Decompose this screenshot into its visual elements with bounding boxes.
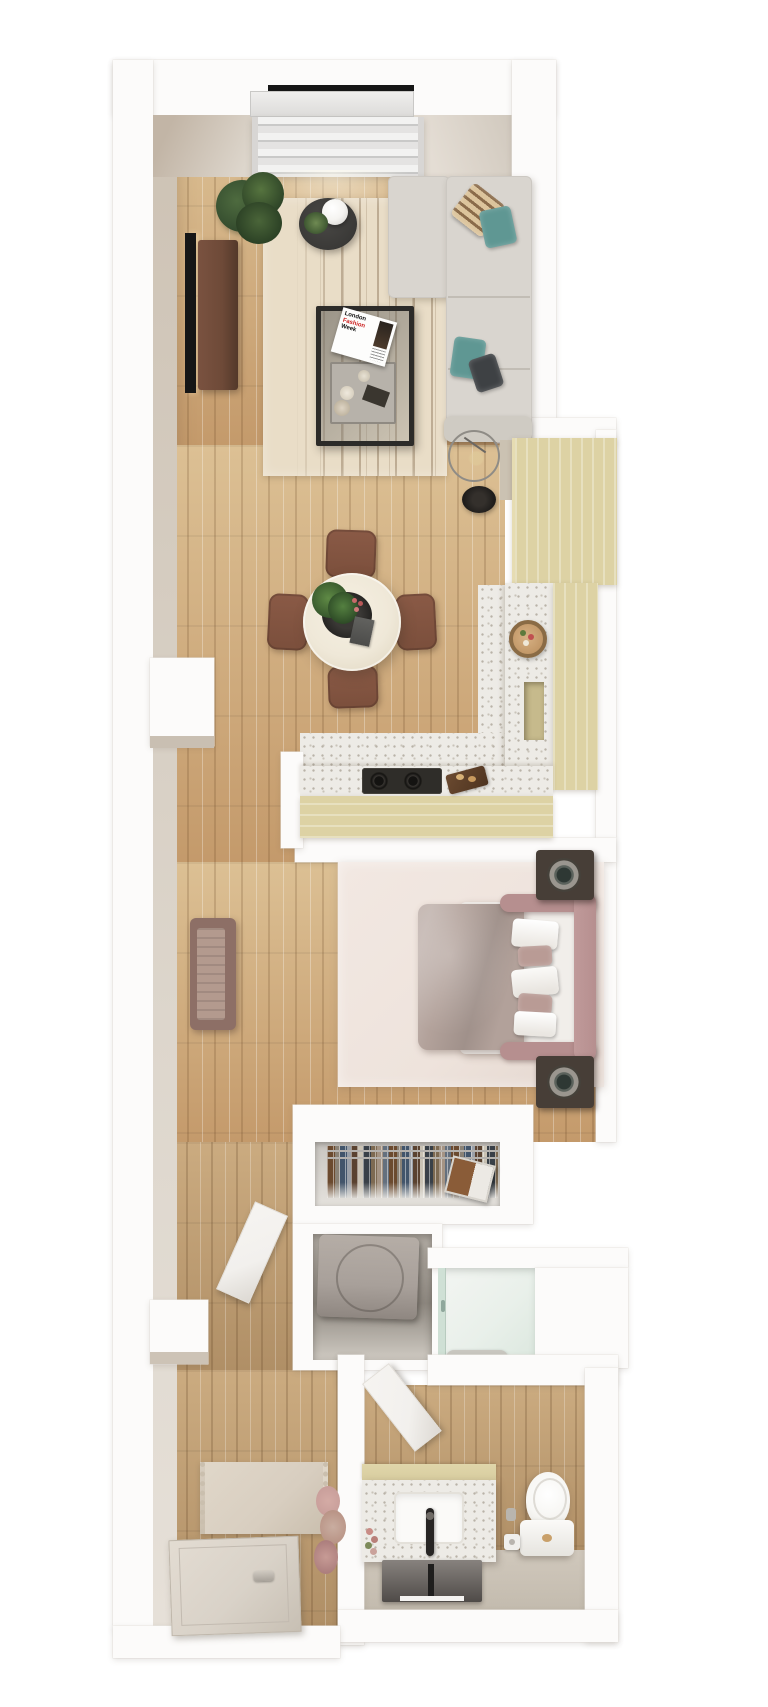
- table-berries: [352, 598, 357, 603]
- side-table-plant: [304, 212, 328, 234]
- bed-pillow-white: [513, 1011, 556, 1037]
- entry-rug: [200, 1462, 328, 1534]
- cooktop-burner: [404, 772, 422, 790]
- tv: [185, 233, 196, 393]
- shower-glass-panel: [438, 1268, 446, 1368]
- pampas-blob: [314, 1540, 338, 1574]
- kitchen-bottom-cabinet: [300, 796, 553, 838]
- mirror-shelf: [400, 1596, 464, 1601]
- toilet-tank: [520, 1520, 574, 1556]
- speaker-cone: [543, 854, 585, 896]
- toilet-paper-holder: [504, 1534, 520, 1550]
- wall-left-inner-face: [153, 115, 177, 1630]
- bathroom-wall-right: [585, 1368, 618, 1642]
- kitchen-cutting-board-sink: [509, 620, 547, 658]
- bed-headboard: [574, 894, 596, 1060]
- toilet-flush-button: [542, 1534, 552, 1542]
- speaker: [536, 1056, 594, 1108]
- washer-door-ring: [335, 1243, 405, 1313]
- wall-soap-bottle: [506, 1508, 516, 1521]
- washer: [317, 1234, 420, 1319]
- toilet-paper-core: [509, 1539, 515, 1545]
- bed-duvet: [418, 904, 524, 1050]
- wall-pier-left: [150, 658, 214, 746]
- magazine-text-columns: [369, 348, 386, 363]
- wire-floor-lamp: [448, 430, 500, 482]
- tray-cup: [340, 386, 354, 400]
- sink-drain: [426, 1512, 434, 1520]
- wall-left: [113, 60, 153, 1630]
- entry-door-panel-line: [179, 1544, 290, 1626]
- wall-pier-left-face: [150, 736, 214, 748]
- entry-door-handle: [253, 1571, 273, 1582]
- board-food-items: [520, 630, 526, 636]
- sofa-chaise: [388, 176, 450, 298]
- kitchen-tall-cabinet: [512, 438, 617, 585]
- kitchen-floor-strip-horizontal: [300, 733, 508, 768]
- page: { "scene": { "description": "3D top-down…: [0, 0, 768, 1707]
- toilet-seat-ring: [533, 1478, 567, 1520]
- kitchen-right-cabinet: [553, 583, 598, 790]
- sofa-seam: [448, 296, 530, 298]
- window-frame: [250, 91, 414, 117]
- round-black-mat: [462, 486, 496, 513]
- shower-wall-right: [535, 1268, 628, 1368]
- tray-candle: [334, 400, 350, 416]
- bread-items: [456, 774, 464, 780]
- window-blinds: [252, 117, 424, 177]
- dining-chair-top: [325, 529, 377, 579]
- plant-foliage: [236, 202, 282, 244]
- pampas-blob: [320, 1510, 346, 1544]
- floor-plan: London Fashion Week: [0, 0, 768, 1707]
- mirror-faucet-reflection: [428, 1564, 434, 1598]
- wall-bench: [190, 918, 236, 1030]
- closet-rail: [327, 1157, 498, 1159]
- bathroom-wall-bottom: [338, 1610, 618, 1642]
- kitchen-open-niche: [524, 682, 544, 740]
- tv-console: [198, 240, 238, 390]
- vanity-vase-flowers: [366, 1528, 373, 1535]
- shower-wall-top: [428, 1248, 628, 1268]
- shower-glass-handle: [441, 1300, 445, 1312]
- cooktop-burner: [370, 772, 388, 790]
- speaker-cone: [543, 1061, 585, 1103]
- vanity-backsplash: [362, 1464, 496, 1480]
- wall-bench-top: [197, 928, 225, 1020]
- speaker: [536, 850, 594, 900]
- closet-rail: [327, 1150, 498, 1152]
- tray-cup: [358, 370, 370, 382]
- wall-left-step-face: [150, 1352, 208, 1364]
- bathroom-mirror: [382, 1560, 482, 1602]
- entry-door-open: [168, 1536, 301, 1636]
- dining-chair-bottom: [327, 665, 378, 709]
- pampas-decor: [312, 1486, 348, 1578]
- bed-pillow-mauve: [517, 945, 552, 967]
- large-plant: [216, 172, 286, 246]
